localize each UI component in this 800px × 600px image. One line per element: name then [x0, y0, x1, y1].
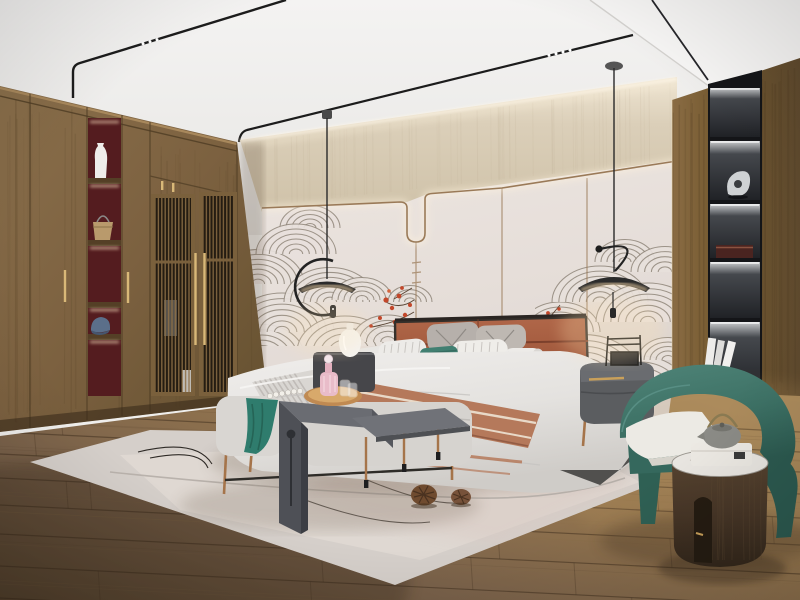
bedroom-render [0, 0, 800, 600]
scene-canvas [0, 0, 800, 600]
vignette [0, 0, 800, 600]
